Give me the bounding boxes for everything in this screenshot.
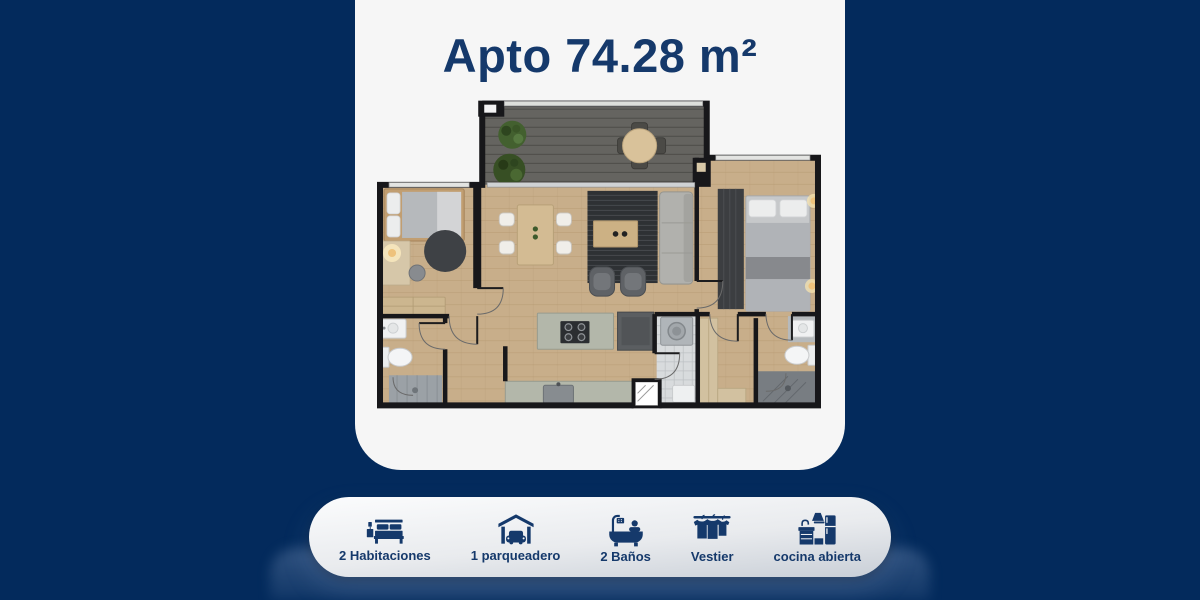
living-area	[587, 191, 692, 296]
open-kitchen-icon-wrap: cocina abierta	[774, 511, 861, 564]
open-kitchen-icon	[796, 511, 838, 547]
feature-vestier: Vestier	[691, 511, 734, 564]
features-bar: 2 Habitaciones 1 parqueadero	[309, 497, 891, 577]
garage-icon	[496, 512, 536, 546]
wardrobe-icon	[691, 511, 733, 547]
feature-label: 2 Baños	[600, 549, 651, 564]
feature-label: 2 Habitaciones	[339, 548, 431, 563]
feature-banos: 2 Baños	[600, 511, 651, 564]
apartment-title: Apto 74.28 m²	[355, 28, 845, 83]
bathtub-icon	[606, 511, 646, 547]
info-card: Apto 74.28 m²	[355, 0, 845, 470]
poster-background: { "card": { "title": "Apto 74.28 m²" }, …	[0, 0, 1200, 600]
feature-habitaciones: 2 Habitaciones	[339, 512, 431, 563]
feature-label: 1 parqueadero	[471, 548, 561, 563]
floor-plan-svg	[377, 100, 823, 412]
feature-parqueadero: 1 parqueadero	[471, 512, 561, 563]
bathroom-2	[785, 316, 818, 365]
feature-label: cocina abierta	[774, 549, 861, 564]
bedroom-2	[718, 189, 821, 311]
feature-label: Vestier	[691, 549, 734, 564]
bed-icon	[364, 512, 406, 546]
